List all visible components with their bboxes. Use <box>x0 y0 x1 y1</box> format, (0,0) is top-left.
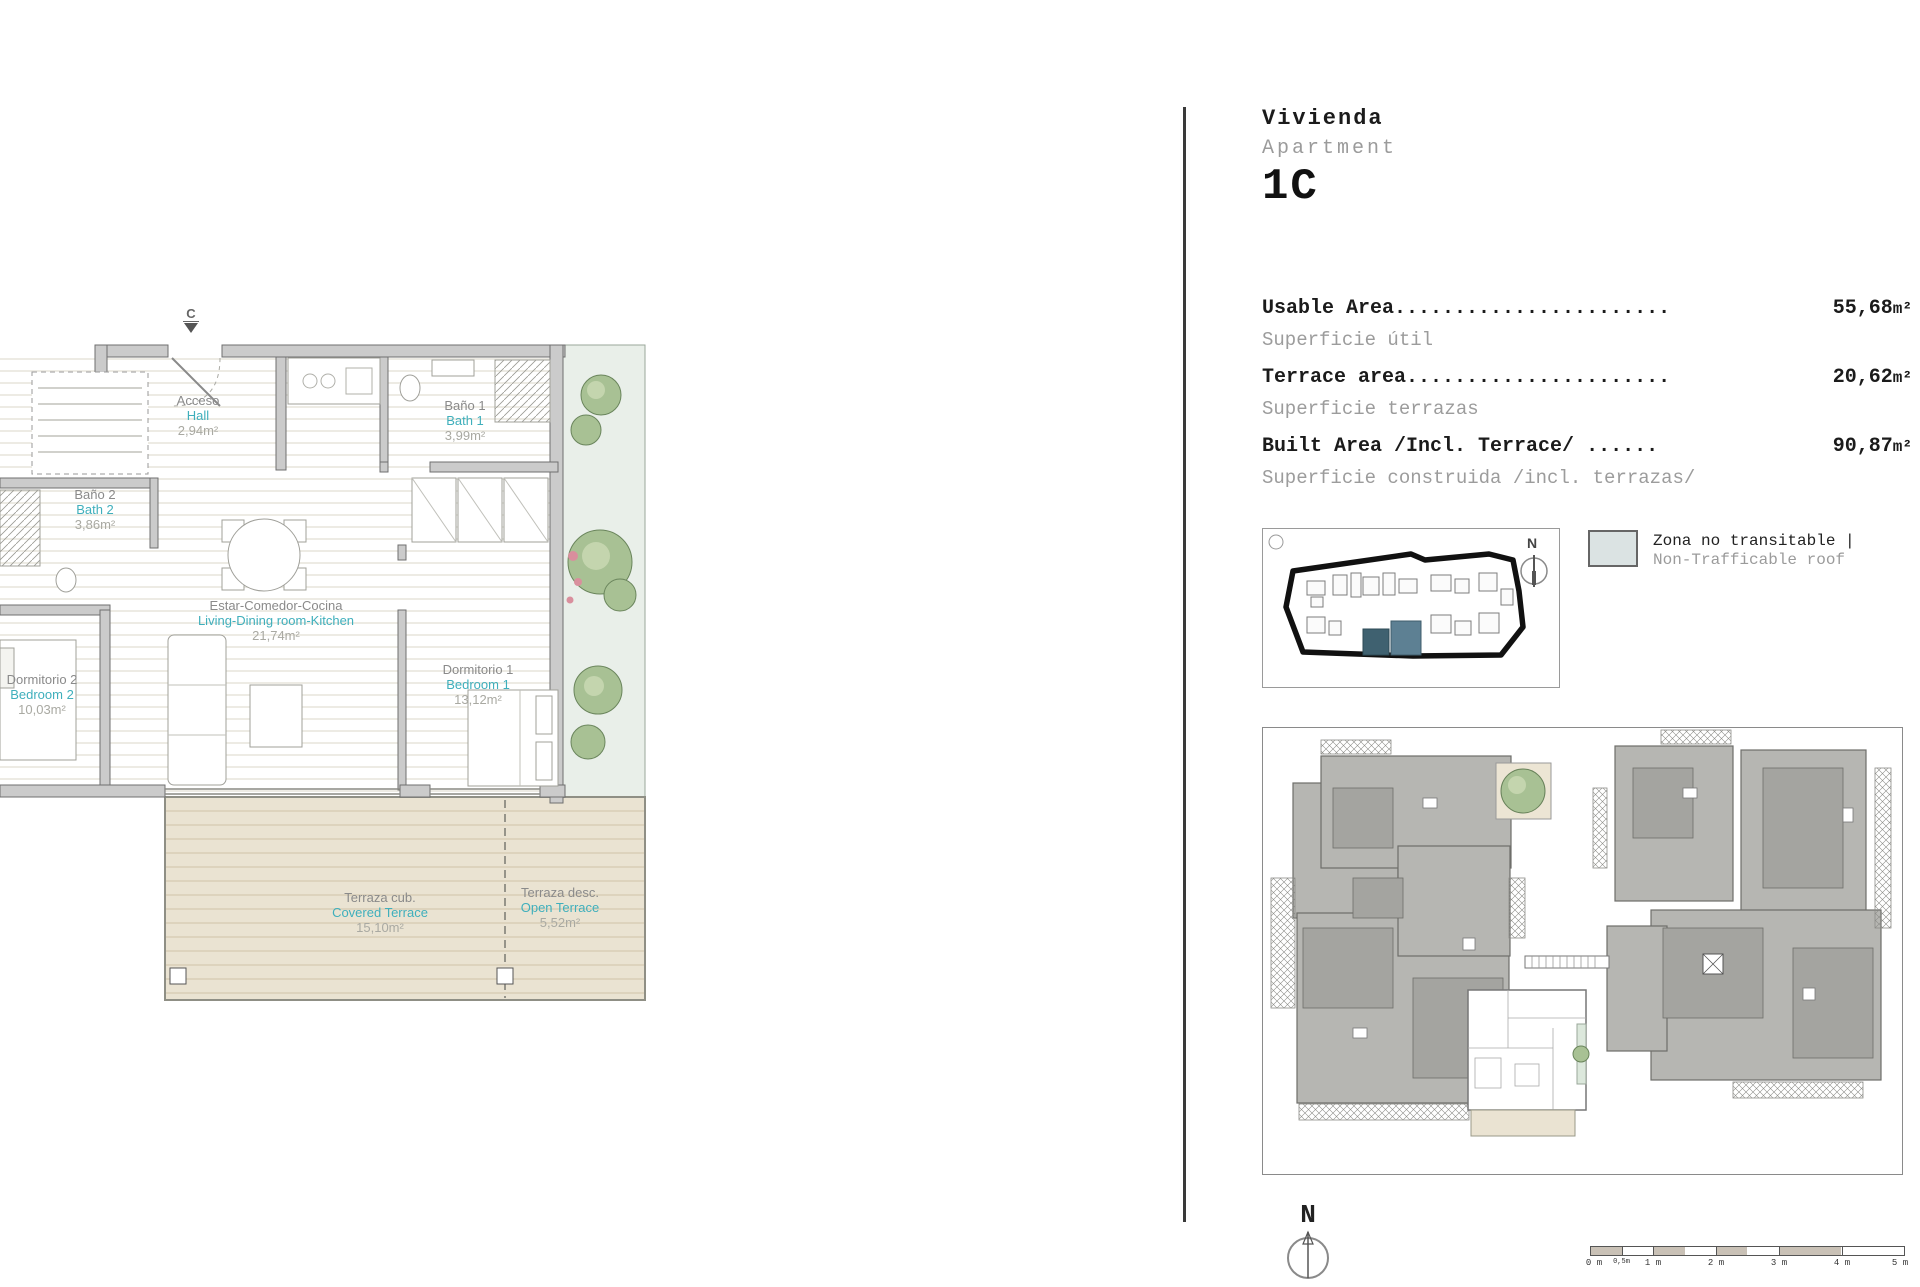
site-north-compass <box>1521 555 1547 587</box>
unit-id: 1C <box>1262 162 1397 212</box>
garden-strip <box>563 345 645 803</box>
title-block: Vivienda Apartment 1C <box>1262 106 1397 212</box>
building-roof-plan <box>1262 727 1903 1175</box>
site-plan-minimap: N <box>1262 528 1560 688</box>
north-compass: N <box>1278 1200 1338 1287</box>
room-label-bath2: Baño 2 Bath 2 3,86m² <box>45 487 145 532</box>
room-label-covered-terrace: Terraza cub. Covered Terrace 15,10m² <box>310 890 450 935</box>
title-en: Apartment <box>1262 137 1397 160</box>
built-area-sub: Superficie construida /incl. terrazas/ <box>1262 466 1912 490</box>
terrace-area-row: Terrace area...................... 20,62… <box>1262 365 1912 391</box>
scale-strip <box>1590 1246 1905 1256</box>
site-north-label: N <box>1527 535 1537 551</box>
usable-area-sub: Superficie útil <box>1262 328 1912 352</box>
roof-featured-unit <box>1468 990 1589 1136</box>
scale-labels: 0 m 0,5m 1 m 2 m 3 m 4 m 5 m <box>1590 1258 1905 1270</box>
legend-line-en: Non-Trafficable roof <box>1653 551 1855 570</box>
apartment-floor-plan: C Acceso Hall 2,94m² Baño 1 Bath 1 3,99m… <box>0 0 960 1280</box>
section-marker-letter: C <box>183 306 198 322</box>
vertical-divider <box>1183 107 1186 1222</box>
built-area-row: Built Area /Incl. Terrace/ ...... 90,87m… <box>1262 434 1912 460</box>
room-label-hall: Acceso Hall 2,94m² <box>150 393 246 438</box>
legend-line-es: Zona no transitable | <box>1653 532 1855 551</box>
closet <box>32 372 148 474</box>
room-label-open-terrace: Terraza desc. Open Terrace 5,52m² <box>490 885 630 930</box>
floor-plan-drawing <box>0 0 960 1280</box>
kitchen-counter <box>288 358 380 404</box>
terrace-area-sub: Superficie terrazas <box>1262 397 1912 421</box>
usable-area-row: Usable Area....................... 55,68… <box>1262 296 1912 322</box>
title-es: Vivienda <box>1262 106 1397 131</box>
non-trafficable-roof-swatch <box>1588 530 1638 567</box>
room-label-living: Estar-Comedor-Cocina Living-Dining room-… <box>166 598 386 643</box>
scale-bar: 0 m 0,5m 1 m 2 m 3 m 4 m 5 m <box>1590 1246 1905 1270</box>
room-label-bedroom2: Dormitorio 2 Bedroom 2 10,03m² <box>0 672 102 717</box>
site-plan-drawing <box>1263 529 1559 687</box>
room-label-bath1: Baño 1 Bath 1 3,99m² <box>415 398 515 443</box>
legend: Zona no transitable | Non-Trafficable ro… <box>1588 530 1855 570</box>
compass-icon <box>1278 1230 1338 1282</box>
roof-tree <box>1496 763 1551 819</box>
wardrobes <box>412 478 548 542</box>
site-highlighted-buildings <box>1363 621 1421 655</box>
section-marker: C <box>176 306 206 333</box>
compass-north-label: N <box>1278 1200 1338 1230</box>
dining-table <box>222 519 306 591</box>
room-label-bedroom1: Dormitorio 1 Bedroom 1 13,12m² <box>418 662 538 707</box>
area-summary: Usable Area....................... 55,68… <box>1262 296 1912 503</box>
section-arrow-icon <box>184 323 198 333</box>
roof-plan-drawing <box>1263 728 1902 1174</box>
